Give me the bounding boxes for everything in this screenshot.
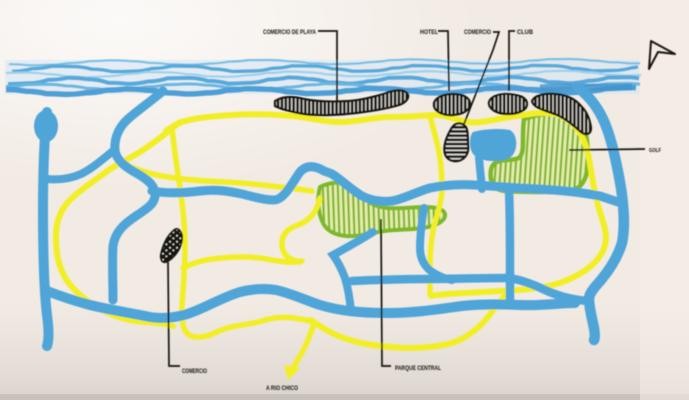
svg-text:PARQUE CENTRAL: PARQUE CENTRAL (395, 366, 441, 372)
svg-text:GOLF: GOLF (649, 148, 661, 154)
svg-text:COMERCIO: COMERCIO (464, 30, 491, 36)
svg-text:CLUB: CLUB (517, 30, 534, 36)
svg-text:A RIO CHICO: A RIO CHICO (266, 386, 298, 392)
svg-text:COMERCIO: COMERCIO (182, 369, 207, 375)
svg-text:COMERCIO DE PLAYA: COMERCIO DE PLAYA (263, 30, 317, 36)
svg-text:HOTEL: HOTEL (420, 30, 438, 36)
